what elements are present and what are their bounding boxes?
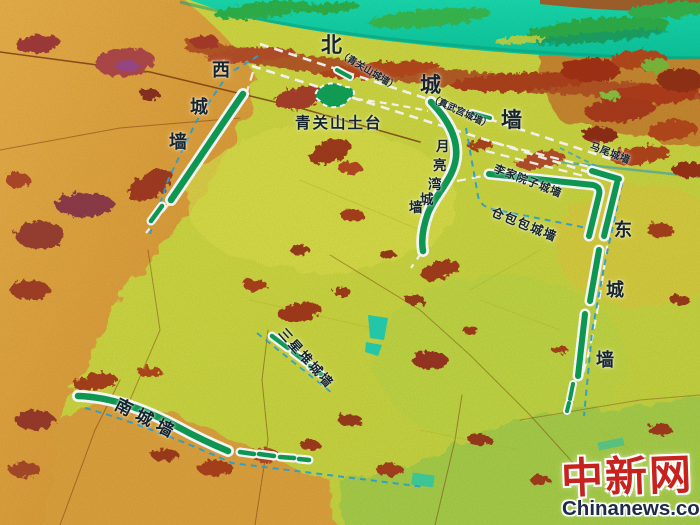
- label-west-wall-char-2: 城: [190, 98, 208, 116]
- label-north-wall-char-2: 城: [420, 75, 441, 96]
- lidar-map-image: 北 城 墙 西 城 墙 东 城 墙 南城墙 月 亮 湾 城 墙 青关山土台 （青…: [0, 0, 700, 525]
- label-yueliangwan-char-1: 月: [436, 140, 450, 154]
- label-west-wall-char-3: 墙: [169, 133, 187, 151]
- label-east-wall-char-1: 东: [614, 221, 632, 239]
- label-east-wall-char-2: 城: [606, 281, 624, 299]
- label-east-wall-char-3: 墙: [596, 351, 614, 369]
- label-yueliangwan-char-2: 亮: [433, 159, 447, 173]
- label-yueliangwan-char-3: 湾: [428, 178, 442, 192]
- label-west-wall-char-1: 西: [212, 61, 230, 79]
- chinanews-url: Chinanews.com: [562, 497, 700, 521]
- label-yueliangwan-char-5: 墙: [409, 201, 423, 215]
- label-north-wall-char-3: 墙: [501, 110, 522, 131]
- label-qingguanshan-platform: 青关山土台: [295, 116, 383, 132]
